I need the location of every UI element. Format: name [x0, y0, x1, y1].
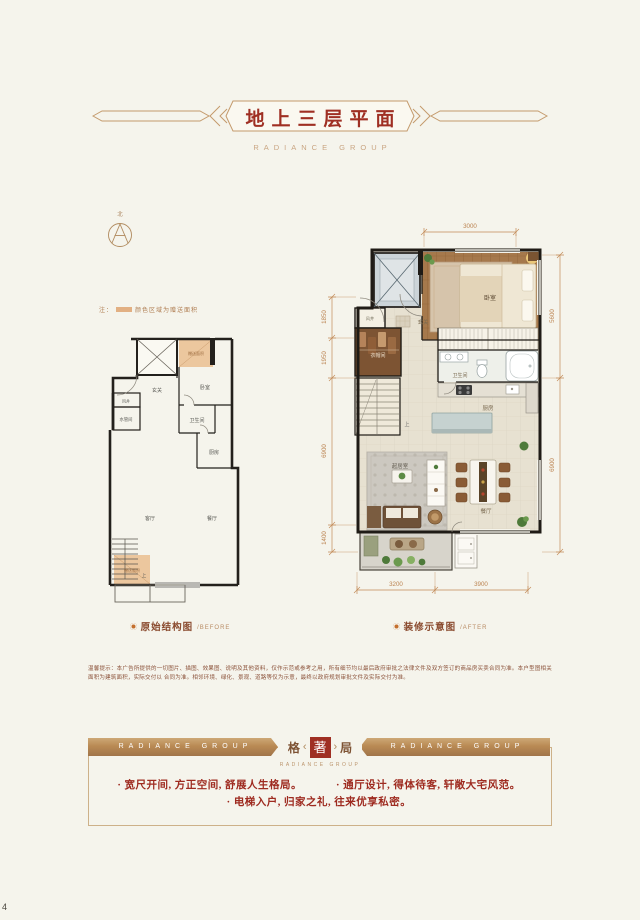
dim-left-1: 1850: [321, 310, 328, 324]
dim-left-3: 6900: [321, 444, 328, 458]
closet-row: [438, 328, 538, 350]
elevator-shaft: [137, 339, 177, 375]
caption-bullet-icon: [393, 623, 400, 630]
room-label-dining: 餐厅: [480, 507, 492, 515]
balcony: [360, 532, 452, 570]
logo-seal: 著: [310, 737, 331, 758]
gift-area-note: 注： 颜色区域为赠送面积: [99, 305, 198, 314]
after-caption-text: 装修示意图: [404, 619, 457, 633]
room-label-bath: 卫生间: [452, 372, 467, 379]
room-label-bedroom: 卧室: [484, 294, 496, 302]
selling-point: · 电梯入户, 归家之礼, 往来优享私密。: [227, 794, 412, 809]
toilet: [477, 365, 487, 378]
pillow: [522, 300, 533, 321]
before-floorplan: 玄关 卧室 风井 水管间 卫生间 厨房 客厅 餐厅 上 赠送面积 赠送面积: [100, 333, 260, 613]
logo-bracket-right: ›: [334, 741, 338, 753]
note-prefix: 注：: [99, 305, 113, 314]
fridge: [526, 383, 538, 413]
sofa-chaise: [367, 506, 381, 528]
planter: [364, 536, 378, 556]
logo-char-left: 格: [288, 739, 300, 756]
room-label-dining: 餐厅: [207, 515, 217, 522]
gift-color-swatch: [116, 307, 132, 312]
dim-bottom-1: 3200: [389, 581, 403, 588]
room-label-bath: 卫生间: [189, 417, 204, 424]
selling-points-row2: · 电梯入户, 归家之礼, 往来优享私密。: [88, 794, 550, 809]
entry-rug: [396, 316, 410, 327]
selling-point: · 通厅设计, 得体待客, 轩敞大宅风范。: [336, 777, 521, 792]
table-plant: [399, 473, 406, 480]
bedroom-zone: [422, 252, 540, 340]
selling-point: · 宽尺开间, 方正空间, 舒展人生格局。: [117, 777, 302, 792]
dim-right-1: 5600: [549, 309, 556, 323]
page-number: 4: [2, 902, 7, 912]
disclaimer: 温馨提示：本广告所提供的一切图片、描图、效果图、说明及其他资料，仅作示范或参考之…: [88, 665, 552, 682]
room-label-shaft: 风井: [366, 315, 374, 322]
room-label-bedroom: 卧室: [200, 384, 210, 391]
compass-icon: 北: [101, 207, 139, 253]
after-caption-en: /AFTER: [460, 625, 487, 631]
brand-name: RADIANCE GROUP: [0, 143, 640, 152]
page-title: 地上三层平面: [190, 104, 450, 131]
bathtub: [506, 351, 538, 381]
gift-label-top: 赠送面积: [188, 350, 204, 356]
balcony-outline: [115, 585, 185, 602]
selling-points-row1: · 宽尺开间, 方正空间, 舒展人生格局。 · 通厅设计, 得体待客, 轩敞大宅…: [88, 777, 550, 792]
floorplan-poster-page: 地上三层平面 RADIANCE GROUP 北 注： 颜色区域为赠送面积: [0, 0, 640, 920]
door-arcs: [117, 375, 208, 433]
room-label-living: 客厅: [145, 515, 155, 522]
logo-subtitle: RADIANCE GROUP: [250, 762, 390, 768]
after-floorplan: 3000 1850 1950 6900 1400 5600 6900 3200 …: [310, 220, 585, 600]
stove: [456, 385, 472, 395]
room-label-kitchen: 厨房: [482, 404, 494, 412]
disclaimer-line2: 合同为准。相邻环境、绿化、景观、道路等仅为示意，最终以政府规划审批文件及实际交付…: [164, 675, 409, 681]
storage-cabinet: [455, 534, 477, 568]
room-label-pipe: 水管间: [120, 416, 133, 423]
footer-banner-left: RADIANCE GROUP: [88, 738, 278, 756]
note-text: 颜色区域为赠送面积: [135, 305, 198, 314]
dim-bottom-2: 3900: [474, 581, 488, 588]
after-caption: 装修示意图 /AFTER: [358, 619, 522, 633]
pillow: [522, 270, 533, 291]
before-caption-en: /BEFORE: [197, 625, 230, 631]
stairs-up-label: 上: [404, 421, 409, 428]
elevator-shaft: [374, 253, 420, 307]
logo-bracket-left: ‹: [303, 741, 307, 753]
before-caption: 原始结构图 /BEFORE: [98, 619, 262, 633]
room-label-hall: 玄关: [152, 387, 162, 394]
dim-left-4: 1400: [321, 531, 328, 545]
room-label-hall: 玄关: [417, 318, 429, 326]
logo-char-right: 局: [340, 739, 352, 756]
caption-bullet-icon: [130, 623, 137, 630]
dim-top: 3000: [463, 223, 477, 230]
dim-right-2: 6900: [549, 458, 556, 472]
before-caption-text: 原始结构图: [141, 619, 194, 633]
dim-left-2: 1950: [321, 351, 328, 365]
room-label-shaft: 风井: [122, 398, 130, 404]
gift-label-bottom: 赠送面积: [124, 567, 140, 573]
footer-banner-right: RADIANCE GROUP: [360, 738, 550, 756]
vanity: [440, 352, 468, 362]
cloakroom: [355, 328, 401, 376]
room-label-kitchen: 厨房: [209, 449, 219, 456]
room-label-living: 起居室: [392, 462, 409, 470]
stairs: [355, 378, 400, 435]
plant: [520, 442, 529, 451]
footer-logo: 格 ‹ 著 › 局: [278, 735, 362, 759]
room-label-cloak: 衣帽间: [370, 352, 385, 359]
compass-north-label: 北: [117, 210, 123, 218]
stairs-up-label: 上: [142, 572, 147, 578]
